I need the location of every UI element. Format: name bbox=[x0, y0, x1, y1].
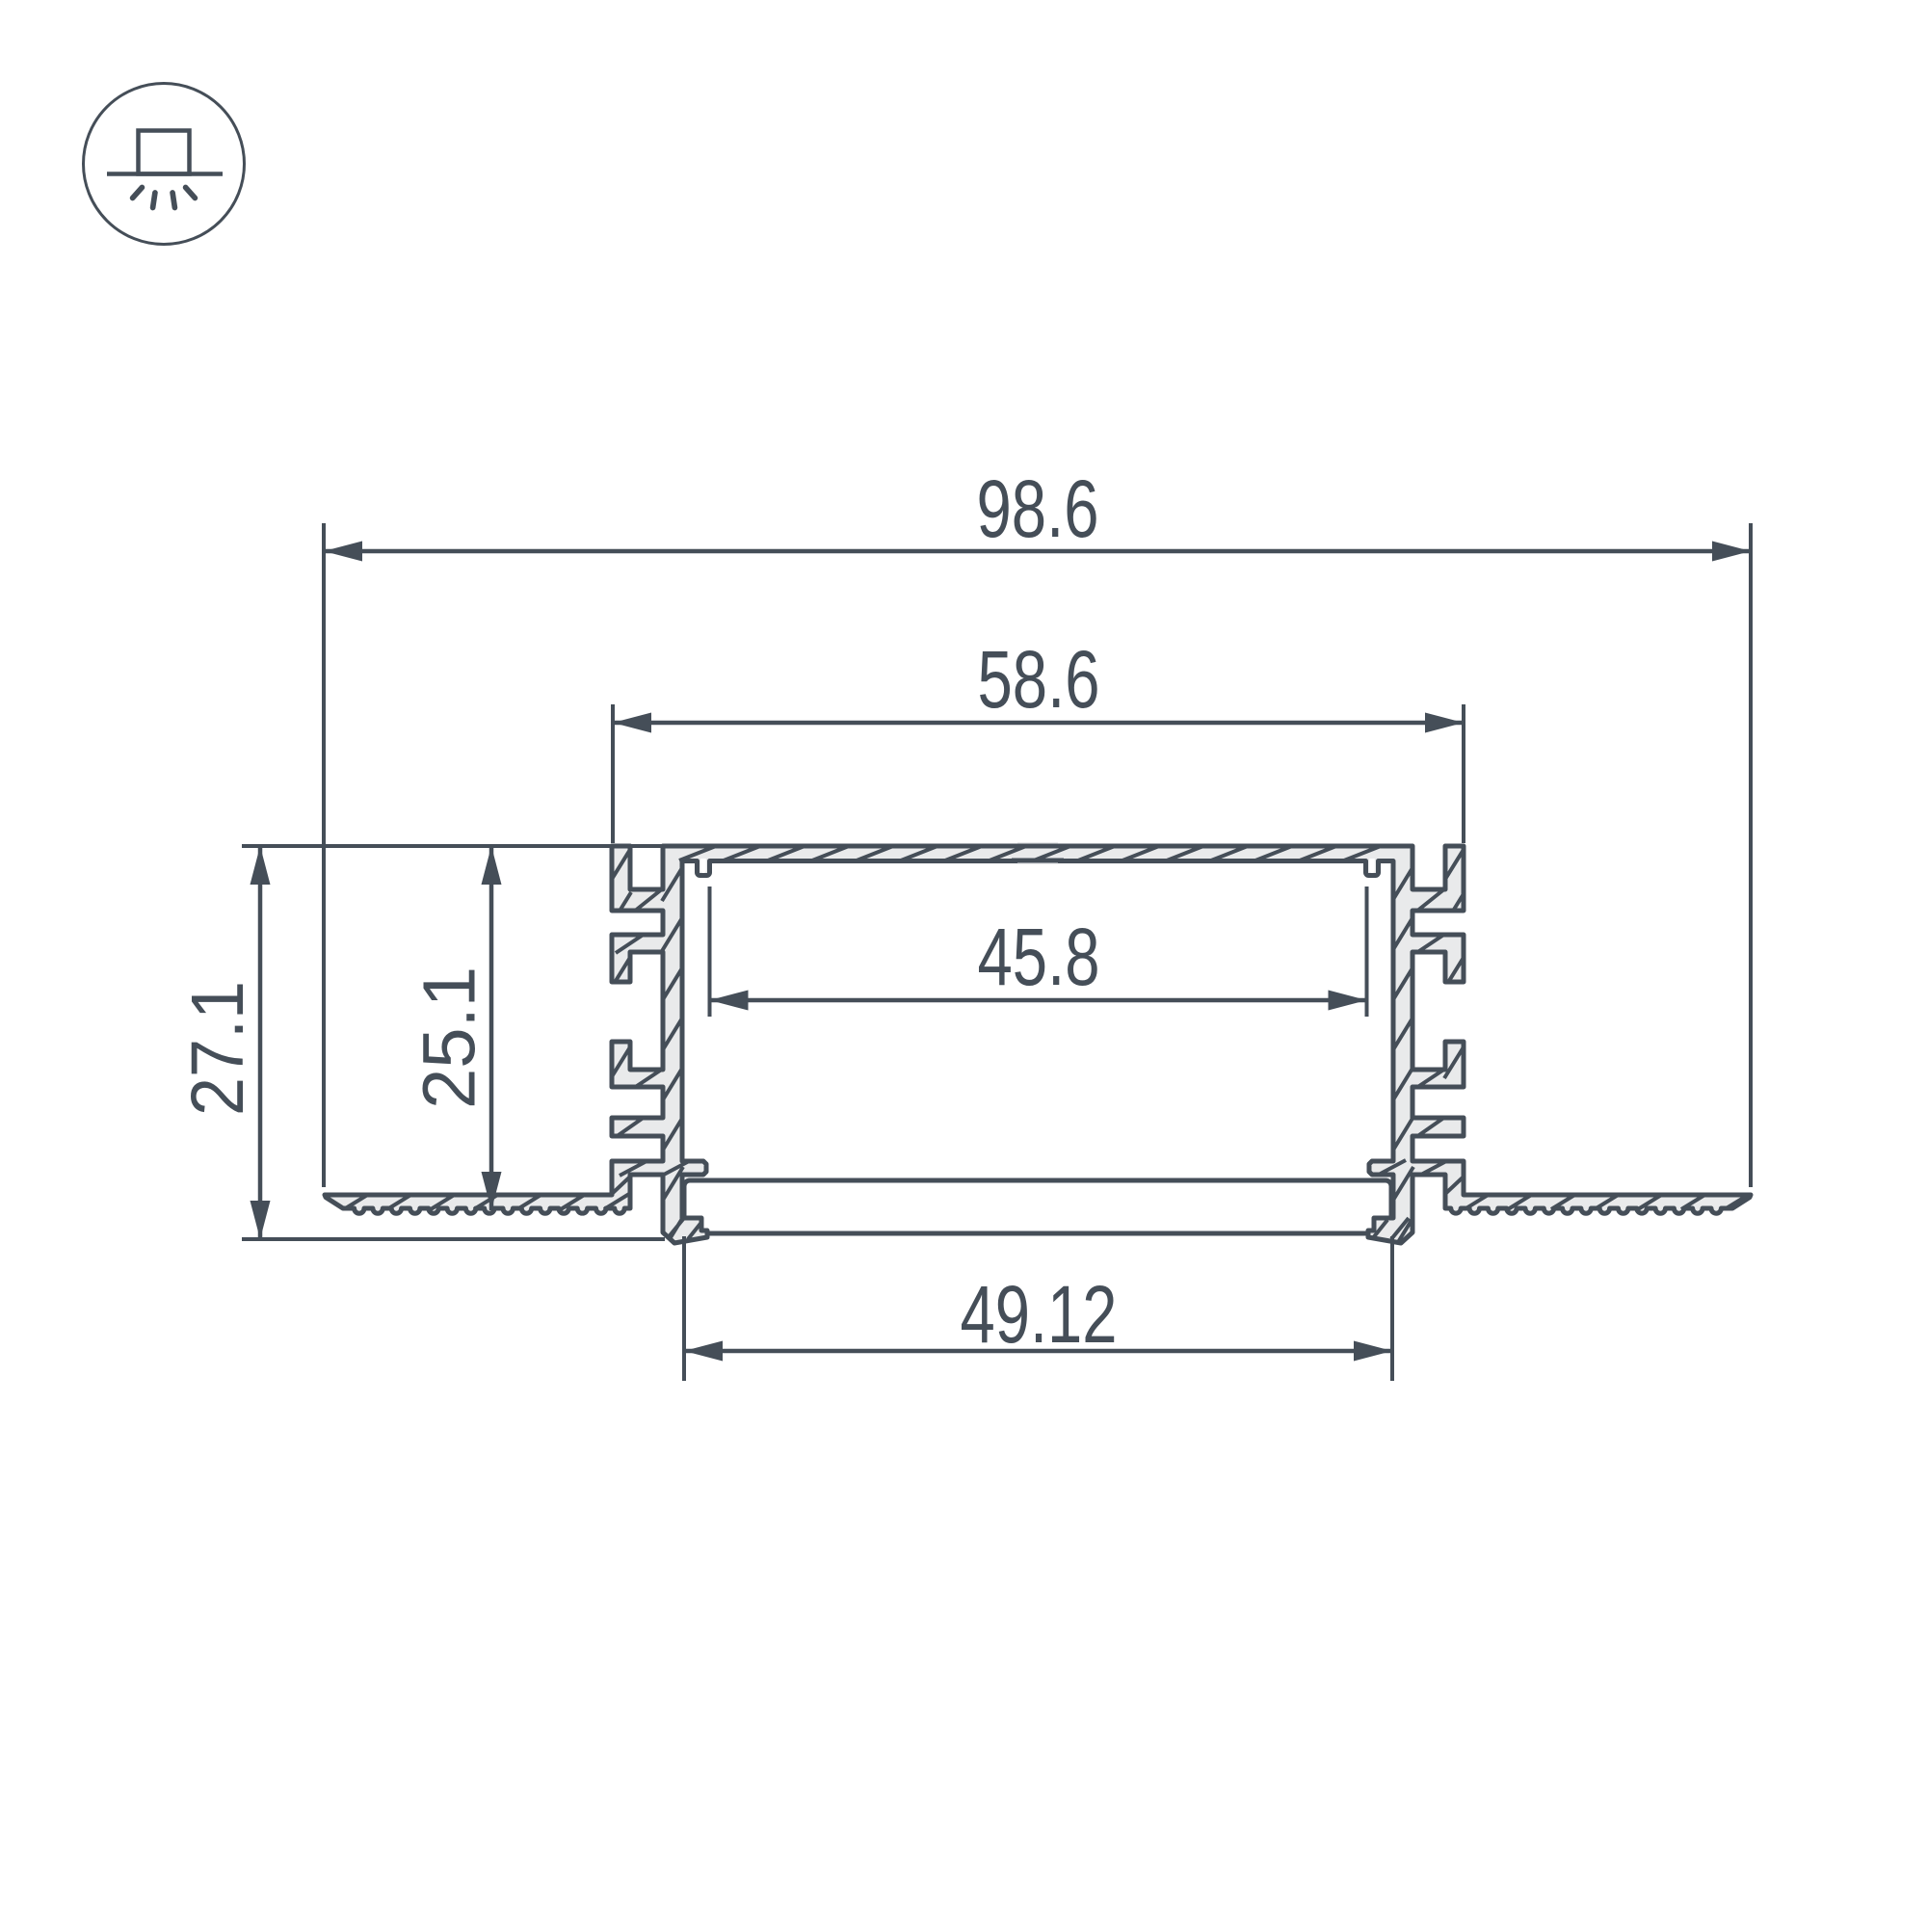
svg-text:49.12: 49.12 bbox=[961, 1269, 1118, 1360]
svg-text:25.1: 25.1 bbox=[409, 966, 491, 1109]
svg-text:27.1: 27.1 bbox=[176, 981, 259, 1116]
svg-text:98.6: 98.6 bbox=[977, 463, 1099, 554]
svg-text:45.8: 45.8 bbox=[978, 912, 1100, 1002]
svg-text:58.6: 58.6 bbox=[978, 634, 1100, 725]
